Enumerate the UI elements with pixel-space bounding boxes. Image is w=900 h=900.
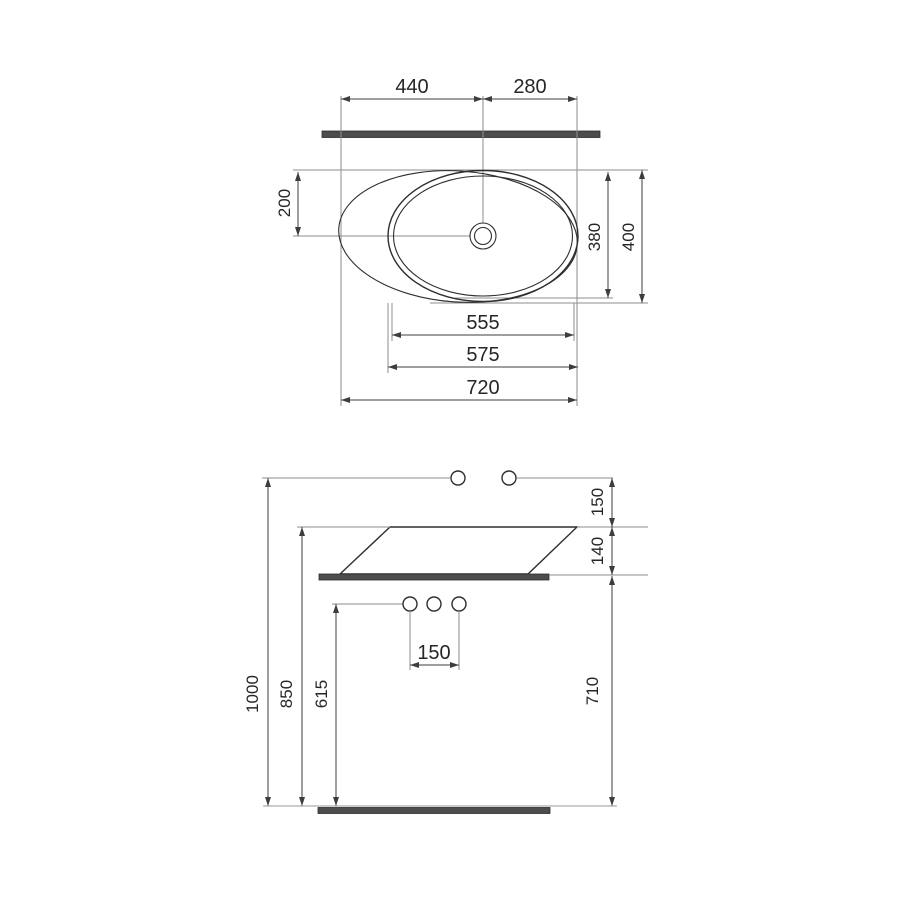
dimension-label-400: 400 — [619, 223, 638, 251]
dimension-label-150-pitch: 150 — [417, 642, 450, 664]
wall-slab — [322, 131, 600, 138]
drain-hole-inner — [475, 228, 492, 245]
front-elevation-view: 150 140 710 1000 850 615 150 — [243, 471, 648, 814]
drain-hole-outer — [470, 223, 496, 249]
dimension-label-380: 380 — [585, 223, 604, 251]
dimension-label-575: 575 — [466, 344, 499, 366]
dimension-label-200: 200 — [275, 189, 294, 217]
sink-dimension-drawing: 440 280 200 380 400 555 575 720 — [0, 0, 900, 900]
dimension-label-555: 555 — [466, 312, 499, 334]
tap-hole — [502, 471, 516, 485]
dimension-label-440: 440 — [395, 76, 428, 98]
dimension-label-720: 720 — [466, 377, 499, 399]
dimension-label-710: 710 — [583, 677, 602, 705]
supply-hole — [427, 597, 441, 611]
floor-slab — [318, 808, 550, 814]
dimension-label-280: 280 — [513, 76, 546, 98]
supply-hole — [403, 597, 417, 611]
dimension-label-150-tap: 150 — [588, 488, 607, 516]
basin-front-profile — [340, 527, 577, 574]
plan-view: 440 280 200 380 400 555 575 720 — [275, 76, 648, 406]
supply-hole — [452, 597, 466, 611]
dimension-label-140: 140 — [588, 537, 607, 565]
tap-hole — [451, 471, 465, 485]
dimension-label-1000: 1000 — [243, 675, 262, 713]
dimension-label-615: 615 — [312, 680, 331, 708]
dimension-label-850: 850 — [277, 680, 296, 708]
countertop-slab — [319, 574, 549, 580]
technical-drawing-page: 440 280 200 380 400 555 575 720 — [0, 0, 900, 900]
